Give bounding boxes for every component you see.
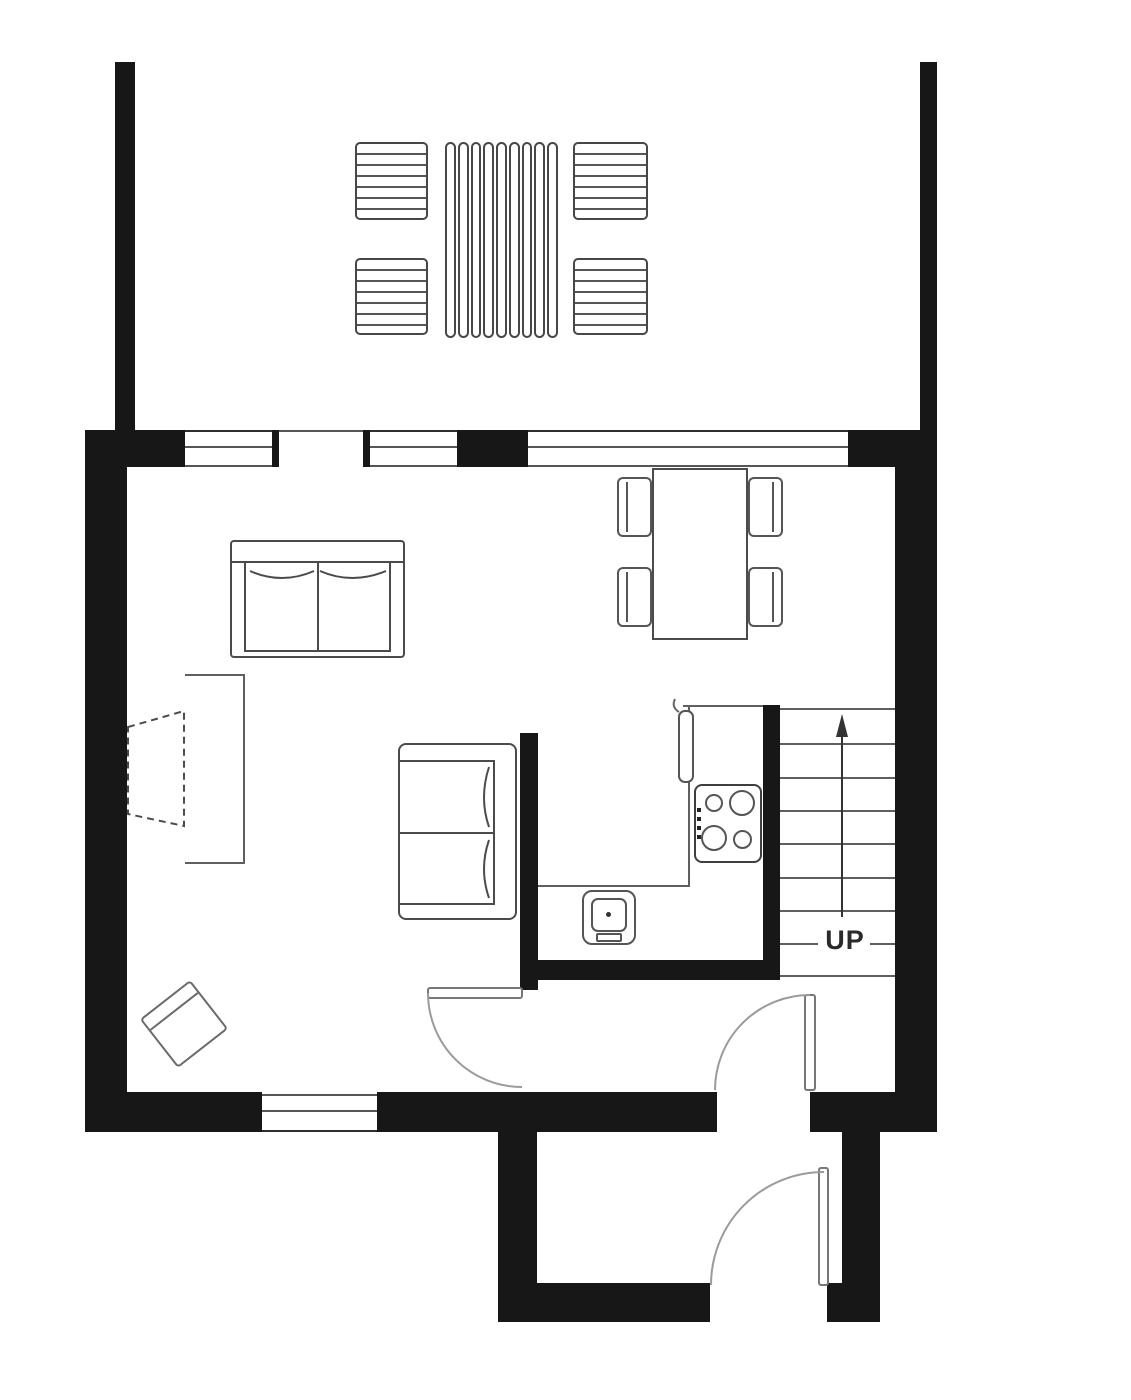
- front-door-leaf: [819, 1168, 828, 1285]
- sofa-cushion-curve: [250, 571, 314, 578]
- stairs-up-arrowhead: [836, 714, 848, 737]
- interior-door-swing: [428, 993, 522, 1087]
- counter-hook: [674, 699, 679, 712]
- front-door-swing: [711, 1172, 824, 1285]
- fireplace-surround: [128, 711, 184, 826]
- loveseat-cushion-curve: [484, 767, 489, 827]
- interior-door-leaf: [805, 995, 815, 1090]
- floor-plan: UP: [0, 0, 1131, 1400]
- interior-door-leaf: [428, 988, 522, 998]
- plan-overlay: [0, 0, 1131, 1400]
- loveseat-cushion-curve: [484, 840, 489, 898]
- interior-door-swing: [715, 995, 810, 1090]
- sofa-cushion-curve: [320, 571, 386, 578]
